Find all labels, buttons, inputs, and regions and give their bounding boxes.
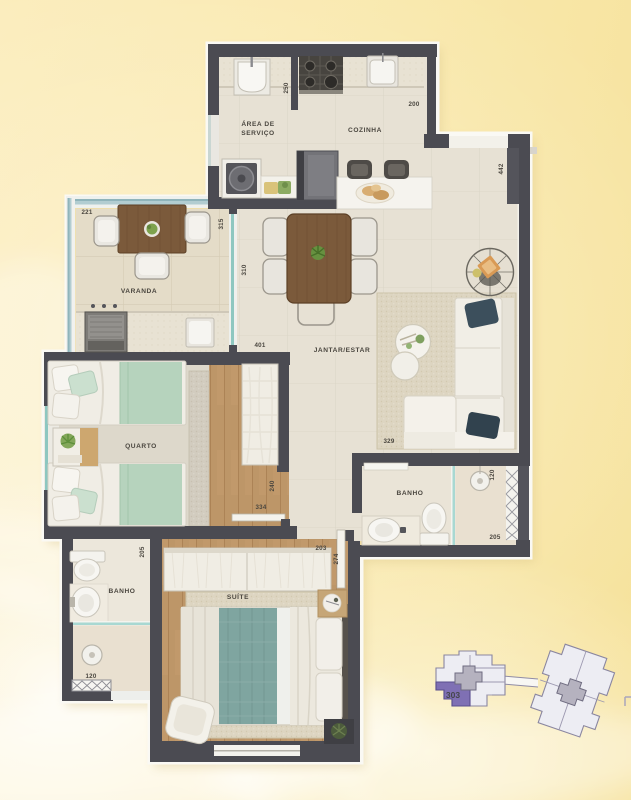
svg-text:120: 120 xyxy=(489,469,496,480)
svg-text:BANHO: BANHO xyxy=(109,588,136,595)
svg-text:329: 329 xyxy=(384,438,395,445)
svg-text:205: 205 xyxy=(139,546,146,557)
svg-text:COZINHA: COZINHA xyxy=(348,127,382,134)
svg-text:BANHO: BANHO xyxy=(397,490,424,497)
svg-text:240: 240 xyxy=(269,480,276,491)
svg-text:303: 303 xyxy=(446,690,460,700)
svg-text:200: 200 xyxy=(409,101,420,108)
svg-text:442: 442 xyxy=(498,163,505,174)
svg-text:274: 274 xyxy=(333,553,340,564)
svg-text:250: 250 xyxy=(283,82,290,93)
svg-text:205: 205 xyxy=(490,534,501,541)
svg-text:315: 315 xyxy=(218,218,225,229)
svg-text:120: 120 xyxy=(86,673,97,680)
svg-text:VARANDA: VARANDA xyxy=(121,288,157,295)
svg-text:QUARTO: QUARTO xyxy=(125,443,157,450)
svg-text:ÁREA DE: ÁREA DE xyxy=(241,119,274,128)
svg-text:310: 310 xyxy=(241,264,248,275)
svg-text:SERVIÇO: SERVIÇO xyxy=(241,130,274,137)
svg-text:334: 334 xyxy=(256,504,267,511)
svg-text:SUÍTE: SUÍTE xyxy=(227,592,249,601)
svg-text:203: 203 xyxy=(316,545,327,552)
svg-text:401: 401 xyxy=(255,342,266,349)
svg-text:221: 221 xyxy=(82,209,93,216)
svg-text:JANTAR/ESTAR: JANTAR/ESTAR xyxy=(314,347,371,354)
